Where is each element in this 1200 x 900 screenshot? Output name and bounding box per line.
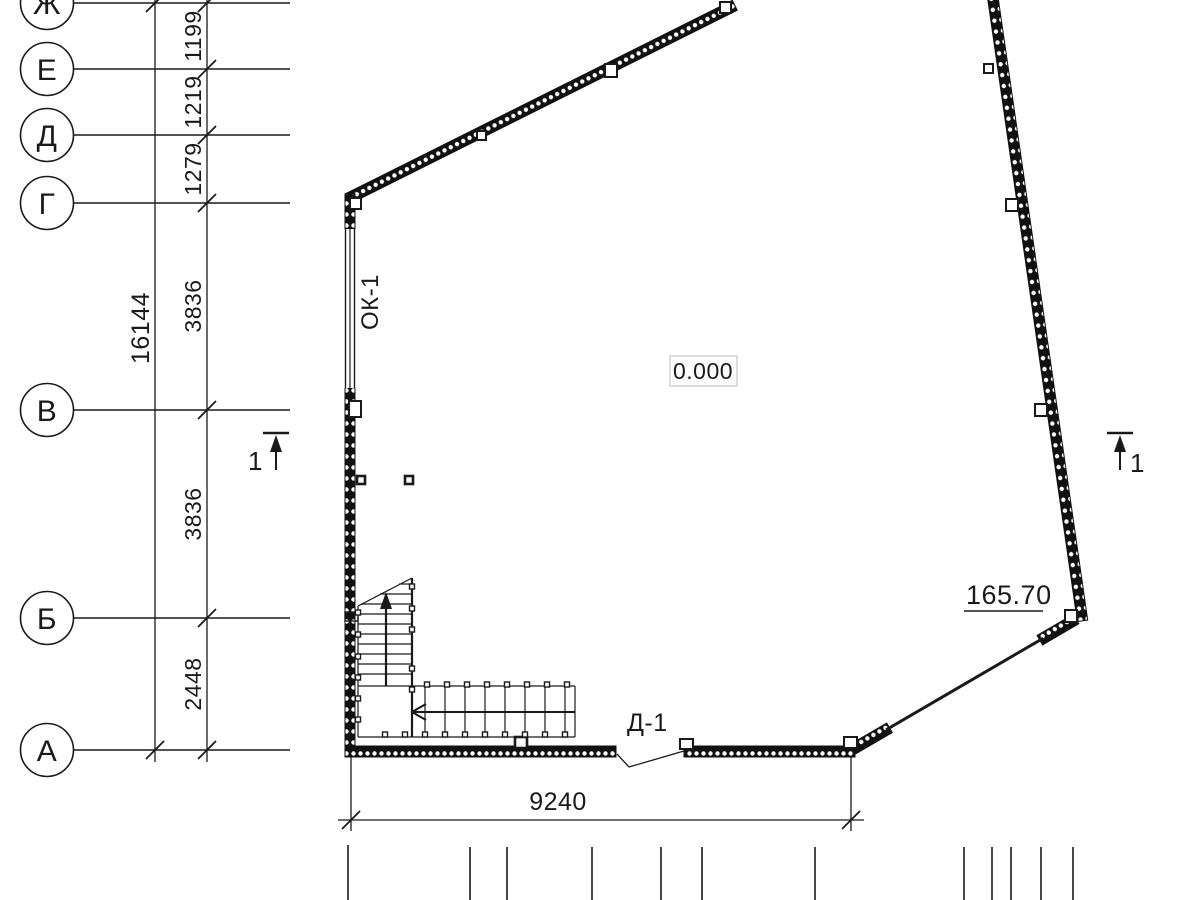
dim-segment: 2448	[180, 657, 206, 710]
dim-segment: 1199	[180, 10, 206, 61]
dim-segment: 1219	[180, 75, 206, 128]
bottom-wall-right	[684, 746, 855, 757]
dim-segment: 3836	[180, 279, 206, 332]
dim-segment: 3836	[180, 487, 206, 540]
axis-label: Ж	[33, 0, 61, 21]
bottom-dimension: 9240	[338, 757, 864, 831]
door-mark-text: Д-1	[627, 709, 668, 737]
level-mark-box: 0.000	[670, 356, 737, 386]
axis-label: Д	[37, 120, 58, 153]
stair-up-arrow	[380, 592, 392, 686]
axis-label: А	[37, 735, 58, 768]
vertical-dimension-lines: 16144 1199 1219 1279 3836 3836 2448	[127, 0, 216, 762]
dim-segment: 1279	[180, 142, 206, 195]
level-mark-text: 0.000	[673, 358, 733, 384]
floor-plan-page: Ж Е Д Г В Б А 16144 1199 1	[0, 0, 1200, 900]
window-ok1	[344, 229, 357, 388]
dim-overall-height: 16144	[127, 292, 155, 364]
bottom-wall-left	[345, 746, 616, 757]
stairs	[356, 578, 576, 737]
stair-left-arrow	[412, 704, 575, 720]
window-mark-text: ОК-1	[357, 274, 384, 330]
top-wall	[345, 0, 737, 203]
right-wall	[987, 0, 1088, 622]
axis-label: Г	[39, 188, 56, 221]
door-d1-swing	[617, 751, 684, 767]
elevation-mark: 165.70	[964, 580, 1052, 611]
diagonal-wall	[850, 614, 1078, 753]
annotations: 0.000 165.70 ОК-1 Д-1	[357, 274, 1052, 737]
bottom-ruler-ticks	[348, 845, 1073, 900]
axis-label: Е	[37, 54, 58, 87]
elevation-mark-text: 165.70	[966, 580, 1052, 610]
section-number: 1	[248, 446, 263, 476]
section-marker-right: 1	[1107, 433, 1145, 478]
section-number: 1	[1130, 448, 1145, 478]
left-wall	[344, 194, 357, 757]
dim-bottom-width: 9240	[529, 788, 587, 816]
axis-label: Б	[37, 603, 57, 636]
axis-label: В	[37, 395, 58, 428]
section-marker-left: 1	[248, 433, 289, 476]
floor-plan-canvas: Ж Е Д Г В Б А 16144 1199 1	[0, 0, 1200, 900]
